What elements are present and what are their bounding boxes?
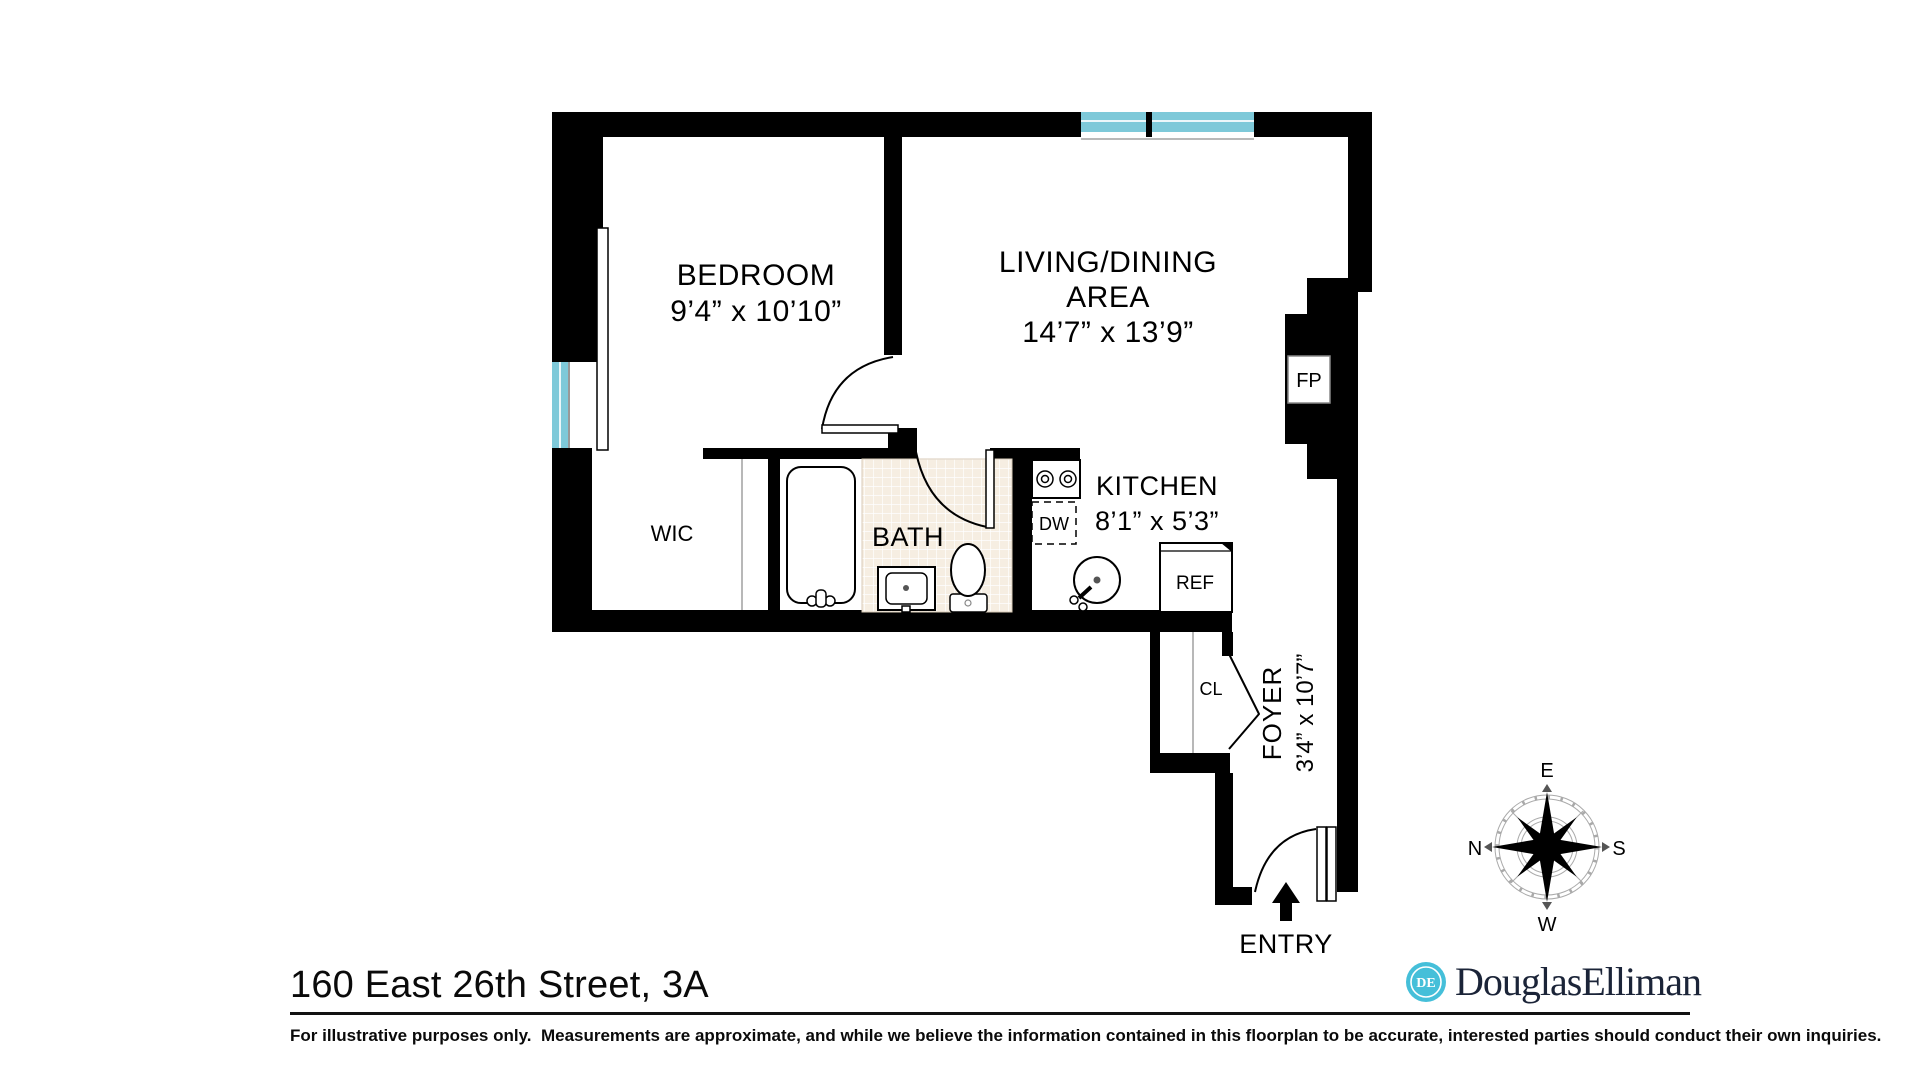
bath-label: BATH <box>872 522 944 552</box>
closet-bifold-door <box>1229 654 1259 749</box>
brand-monogram-icon: DE <box>1404 960 1448 1004</box>
compass-top-label: E <box>1540 760 1553 782</box>
brand-logo: DE DouglasElliman <box>1404 958 1701 1005</box>
footer-divider <box>290 1012 1690 1015</box>
floor-plan: FP DW <box>0 0 1920 1080</box>
stove <box>1032 460 1080 498</box>
compass-cardinal-star <box>1492 792 1602 902</box>
toilet <box>950 544 987 612</box>
fireplace: FP <box>1285 278 1348 479</box>
living-dining-dims: 14’7” x 13’9” <box>1022 316 1194 349</box>
foyer-dims: 3’4” x 10’7” <box>1292 654 1319 773</box>
kitchen-sink <box>1070 557 1120 611</box>
compass-rose: E S W N <box>1468 760 1626 936</box>
disclaimer-text: For illustrative purposes only. Measurem… <box>290 1026 1881 1046</box>
entry-arrow-icon <box>1272 882 1300 921</box>
top-window <box>1081 112 1254 140</box>
brand-monogram: DE <box>1416 976 1435 991</box>
compass-right-label: S <box>1612 838 1625 860</box>
compass-left-label: N <box>1468 838 1482 860</box>
window-frame <box>597 228 608 450</box>
fireplace-label: FP <box>1296 370 1322 392</box>
floorplan-page: FP DW <box>0 0 1920 1080</box>
brand-name: DouglasElliman <box>1455 958 1701 1005</box>
refrigerator: REF <box>1160 543 1232 612</box>
kitchen-dims: 8’1” x 5’3” <box>1095 506 1219 536</box>
dishwasher: DW <box>1032 502 1076 544</box>
closet-label: CL <box>1199 679 1222 699</box>
address-title: 160 East 26th Street, 3A <box>290 964 709 1007</box>
living-dining-label-line1: LIVING/DINING <box>999 246 1217 279</box>
entry-door <box>1255 827 1336 901</box>
living-dining-label-line2: AREA <box>1066 281 1150 314</box>
kitchen-label: KITCHEN <box>1096 471 1218 501</box>
compass-bottom-label: W <box>1538 914 1557 936</box>
bathtub <box>787 467 855 607</box>
entry-label: ENTRY <box>1239 929 1333 959</box>
foyer-label: FOYER <box>1257 666 1287 761</box>
refrigerator-label: REF <box>1176 573 1214 594</box>
bedroom-label: BEDROOM <box>677 259 836 292</box>
bedroom-door <box>822 357 898 433</box>
wic-label: WIC <box>651 521 694 546</box>
bath-sink <box>878 567 935 612</box>
bedroom-dims: 9’4” x 10’10” <box>670 295 842 328</box>
dishwasher-label: DW <box>1039 514 1069 534</box>
